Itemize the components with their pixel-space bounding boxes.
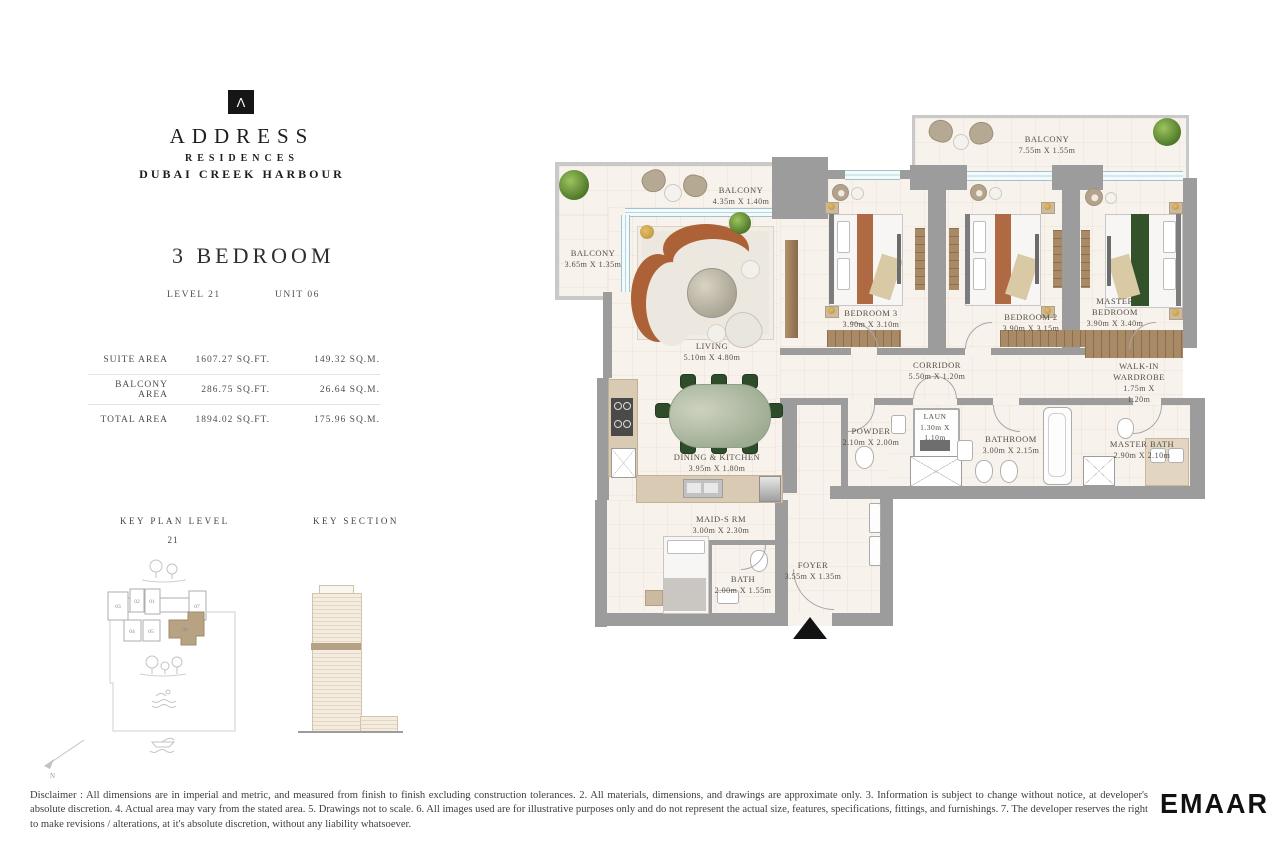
table-row: TOTAL AREA 1894.02 SQ.FT. 175.96 SQ.M. [88, 405, 380, 434]
kitchen-sink [683, 479, 723, 498]
tv-console [785, 240, 798, 338]
headboard [829, 214, 834, 304]
lamp [1172, 309, 1179, 316]
window [1103, 171, 1183, 181]
area-table: SUITE AREA 1607.27 SQ.FT. 149.32 SQ.M. B… [88, 345, 380, 434]
wall [1052, 165, 1103, 190]
area-sqft: 1607.27 SQ.FT. [168, 355, 270, 365]
lamp [828, 203, 835, 210]
level-label: LEVEL 21 [167, 290, 221, 300]
unit-label: UNIT 06 [275, 290, 320, 300]
lamp [1172, 203, 1179, 210]
area-sqm: 26.64 SQ.M. [270, 385, 380, 395]
side-table [989, 187, 1002, 200]
headboard [1176, 214, 1181, 306]
key-section-drawing [298, 585, 403, 737]
wall [910, 165, 967, 190]
room-label-walkin: WALK-IN WARDROBE 1.75m X 1.20m [1111, 361, 1167, 406]
door-opening [848, 398, 874, 405]
room-label-balcony-top: BALCONY 4.35m X 1.40m [713, 185, 770, 208]
room-label-bedroom3: BEDROOM 3 3.90m X 3.10m [843, 308, 900, 331]
wall [782, 398, 797, 493]
door-opening [851, 348, 877, 355]
room-label-laundry: LAUN 1.30m X 1.10m [916, 412, 954, 443]
wardrobe [915, 228, 925, 290]
room-label-master-bedroom: MASTER BEDROOM 3.90m X 3.40m [1083, 296, 1147, 330]
plant-icon [729, 212, 751, 234]
swimmer-icon [152, 690, 176, 708]
balcony-table [664, 184, 682, 202]
wall [772, 157, 828, 219]
tower-elevation [312, 593, 362, 733]
side-table [851, 187, 864, 200]
window [967, 171, 1052, 181]
level-21-highlight [311, 643, 361, 650]
room-label-corridor: CORRIDOR 5.50m X 1.20m [909, 360, 966, 383]
pouf [741, 260, 760, 279]
area-sqft: 286.75 SQ.FT. [168, 385, 270, 395]
wardrobe [949, 228, 959, 290]
bedroom-chair [970, 184, 987, 201]
side-table [645, 590, 663, 606]
room-label-foyer: FOYER 3.55m X 1.35m [785, 560, 842, 583]
room-label-master-bath: MASTER BATH 2.90m X 2.10m [1110, 439, 1174, 462]
wardrobe [1081, 230, 1090, 288]
table-row: BALCONY AREA 286.75 SQ.FT. 26.64 SQ.M. [88, 375, 380, 405]
unit-number: 04 [129, 629, 135, 635]
pillow [667, 540, 705, 554]
toilet [855, 446, 874, 469]
room-label-balcony-tr: BALCONY 7.55m X 1.55m [1019, 134, 1076, 157]
area-row-label: TOTAL AREA [88, 415, 168, 425]
floor-lamp [640, 225, 654, 239]
wall [595, 613, 893, 626]
wall [1183, 178, 1197, 348]
lamp [828, 307, 835, 314]
entry-arrow-icon [793, 617, 827, 639]
room-label-balcony-left: BALCONY 3.65m X 1.35m [565, 248, 622, 271]
brand-block: ADDRESS RESIDENCES DUBAI CREEK HARBOUR [122, 124, 362, 182]
dining-table [669, 384, 771, 448]
room-label-bathroom: BATHROOM 3.00m X 2.15m [983, 434, 1040, 457]
service-shaft [910, 456, 962, 487]
room-label-bedroom2: BEDROOM 2 3.90m X 3.15m [1003, 312, 1060, 335]
wall [775, 500, 788, 613]
window [845, 170, 900, 180]
tree-icon [142, 560, 186, 582]
bedroom-chair [1085, 188, 1103, 206]
area-sqm: 175.96 SQ.M. [270, 415, 380, 425]
brand-name: ADDRESS [122, 124, 362, 149]
closet-door [869, 503, 881, 533]
key-plan-title: KEY PLAN LEVEL [120, 516, 230, 526]
window [625, 208, 772, 217]
stove [611, 398, 633, 436]
area-row-label: BALCONY AREA [88, 380, 168, 400]
toilet [975, 460, 993, 483]
brand-line2: RESIDENCES [122, 153, 362, 164]
area-sqft: 1894.02 SQ.FT. [168, 415, 270, 425]
key-plan-level: 21 [120, 535, 226, 545]
pillow [837, 221, 850, 253]
blanket [664, 578, 706, 611]
floor-plan: BALCONY 3.65m X 1.35m BALCONY 4.35m X 1.… [545, 108, 1235, 660]
bathtub [1043, 407, 1072, 485]
unit-number: 07 [194, 604, 200, 610]
wall [880, 495, 893, 613]
pillow [973, 258, 986, 290]
brand-line3: DUBAI CREEK HARBOUR [122, 167, 362, 182]
boat-icon [150, 738, 174, 752]
disclaimer-text: Disclaimer : All dimensions are in imper… [30, 789, 1148, 832]
bed-bench [897, 234, 901, 284]
room-label-dining-kitchen: DINING & KITCHEN 3.95m X 1.80m [674, 452, 760, 475]
wall [1062, 190, 1080, 348]
unit-number: 05 [148, 629, 154, 635]
coffee-table [687, 268, 737, 318]
tree-icon [559, 170, 589, 200]
pillow [837, 258, 850, 290]
bedroom-chair [832, 184, 849, 201]
area-row-label: SUITE AREA [88, 355, 168, 365]
room-label-living: LIVING 5.10m X 4.80m [684, 341, 741, 364]
brochure-page: Λ ADDRESS RESIDENCES DUBAI CREEK HARBOUR… [0, 0, 1280, 855]
lamp [1044, 203, 1051, 210]
tree-icon [1153, 118, 1181, 146]
door-opening [965, 348, 991, 355]
window [621, 215, 630, 292]
table-row: SUITE AREA 1607.27 SQ.FT. 149.32 SQ.M. [88, 345, 380, 375]
bed-bench [1035, 234, 1039, 284]
toilet [1117, 418, 1134, 439]
wall [928, 190, 946, 348]
unit-number: 01 [149, 599, 155, 605]
unit-number: 06 [182, 627, 188, 633]
room-label-powder: POWDER 2.10m X 2.00m [843, 426, 900, 449]
unit-number: 03 [115, 604, 121, 610]
tree-icon [140, 656, 186, 676]
unit-number: 02 [134, 599, 140, 605]
room-label-bath: BATH 2.00m X 1.55m [715, 574, 772, 597]
bed-bench [1107, 236, 1111, 286]
key-section-title: KEY SECTION [313, 516, 399, 526]
area-sqm: 149.32 SQ.M. [270, 355, 380, 365]
wall [595, 500, 607, 627]
page-title: 3 BEDROOM [172, 243, 335, 269]
pillow [973, 221, 986, 253]
wall [1190, 398, 1205, 498]
north-label: N [50, 772, 55, 780]
closet-door [869, 536, 881, 566]
headboard [965, 214, 970, 304]
appliance [759, 476, 781, 502]
wardrobe [1053, 230, 1062, 288]
north-arrow-icon: N [36, 736, 96, 782]
ground-line [298, 731, 403, 733]
wall [603, 292, 612, 378]
door-opening [993, 398, 1019, 405]
sink [957, 440, 973, 461]
door-opening [913, 398, 957, 405]
pillow [1163, 221, 1176, 253]
balcony-table [953, 134, 969, 150]
side-table [1105, 192, 1117, 204]
address-logo-icon: Λ [228, 90, 254, 114]
emaar-logo: EMAAR [1160, 789, 1269, 821]
room-label-maid-room: MAID-S RM 3.00m X 2.30m [693, 514, 750, 537]
bidet [1000, 460, 1018, 483]
key-plan-drawing: 03 02 01 07 04 05 06 [82, 550, 242, 765]
service-shaft [611, 448, 636, 478]
pillow [1163, 258, 1176, 290]
